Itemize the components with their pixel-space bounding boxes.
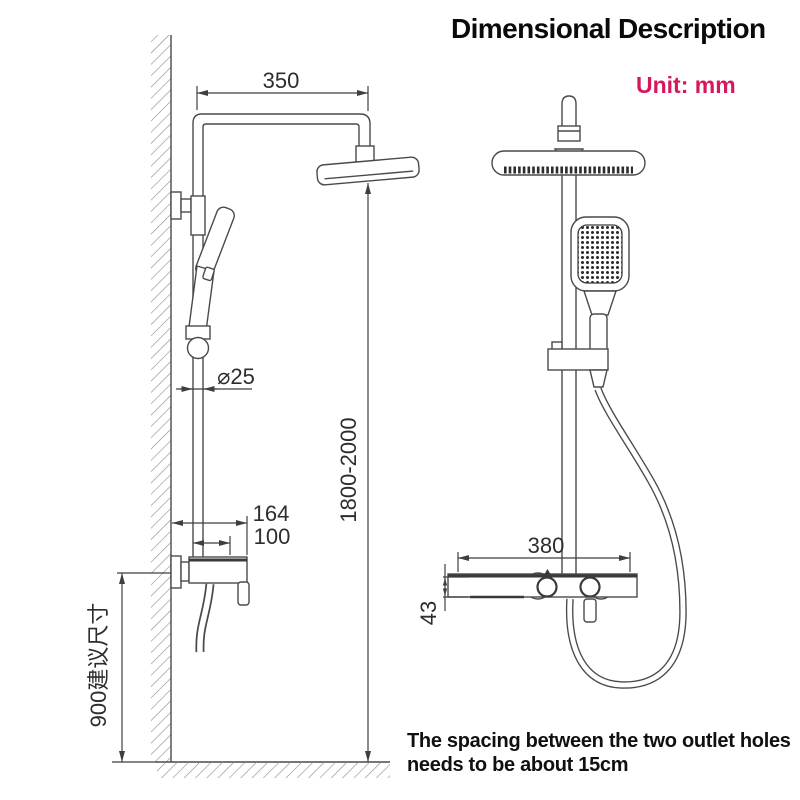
- spacing-note-line2: needs to be about 15cm: [407, 753, 791, 777]
- dim-pipe-diameter: ⌀25: [176, 364, 255, 389]
- rain-head-front: [492, 151, 645, 175]
- dim-install-height-label: 900建议尺寸: [86, 603, 111, 728]
- shower-hose-side: [200, 584, 210, 652]
- dim-outlet-offset: 100: [193, 524, 290, 555]
- temp-knob: [538, 578, 557, 597]
- diverter-knob: [581, 578, 600, 597]
- dim-pipe-diameter-label: ⌀25: [217, 364, 255, 389]
- dim-bar-height-label: 43: [416, 601, 441, 625]
- bar-lever: [584, 599, 596, 622]
- front-view-drawing: 380 43: [416, 96, 683, 685]
- dim-height-range-label: 1800-2000: [336, 417, 361, 522]
- dim-outlet-offset-label: 100: [254, 524, 291, 549]
- spacing-note-line1: The spacing between the two outlet holes: [407, 729, 791, 753]
- dimensional-description-page: Dimensional Description Unit: mm: [0, 0, 800, 800]
- wall-hatch: [151, 35, 171, 762]
- valve-lever: [238, 582, 249, 605]
- shower-hose-front: [570, 389, 683, 685]
- temp-marker: [544, 569, 551, 575]
- rain-head-side: [316, 146, 419, 185]
- side-view-drawing: 350 ⌀25 164 100: [86, 35, 420, 778]
- top-pipe-front: [555, 96, 583, 158]
- slide-knob: [188, 338, 209, 359]
- slide-holder: [548, 342, 608, 387]
- dim-arm-length-label: 350: [263, 68, 300, 93]
- shower-arm: [193, 114, 370, 146]
- dim-valve-width-label: 164: [253, 501, 290, 526]
- dim-bar-width-label: 380: [528, 533, 565, 558]
- dim-arm-length: 350: [197, 68, 368, 111]
- shower-dimension-diagram: 350 ⌀25 164 100: [0, 0, 800, 800]
- floor-hatch: [155, 762, 390, 778]
- spray-face: [578, 225, 622, 283]
- dim-height-range: 1800-2000: [336, 183, 368, 762]
- wall-bracket: [171, 192, 205, 235]
- spacing-note: The spacing between the two outlet holes…: [407, 729, 791, 777]
- dim-bar-width: 380: [458, 533, 630, 572]
- faucet-bar: [448, 569, 637, 622]
